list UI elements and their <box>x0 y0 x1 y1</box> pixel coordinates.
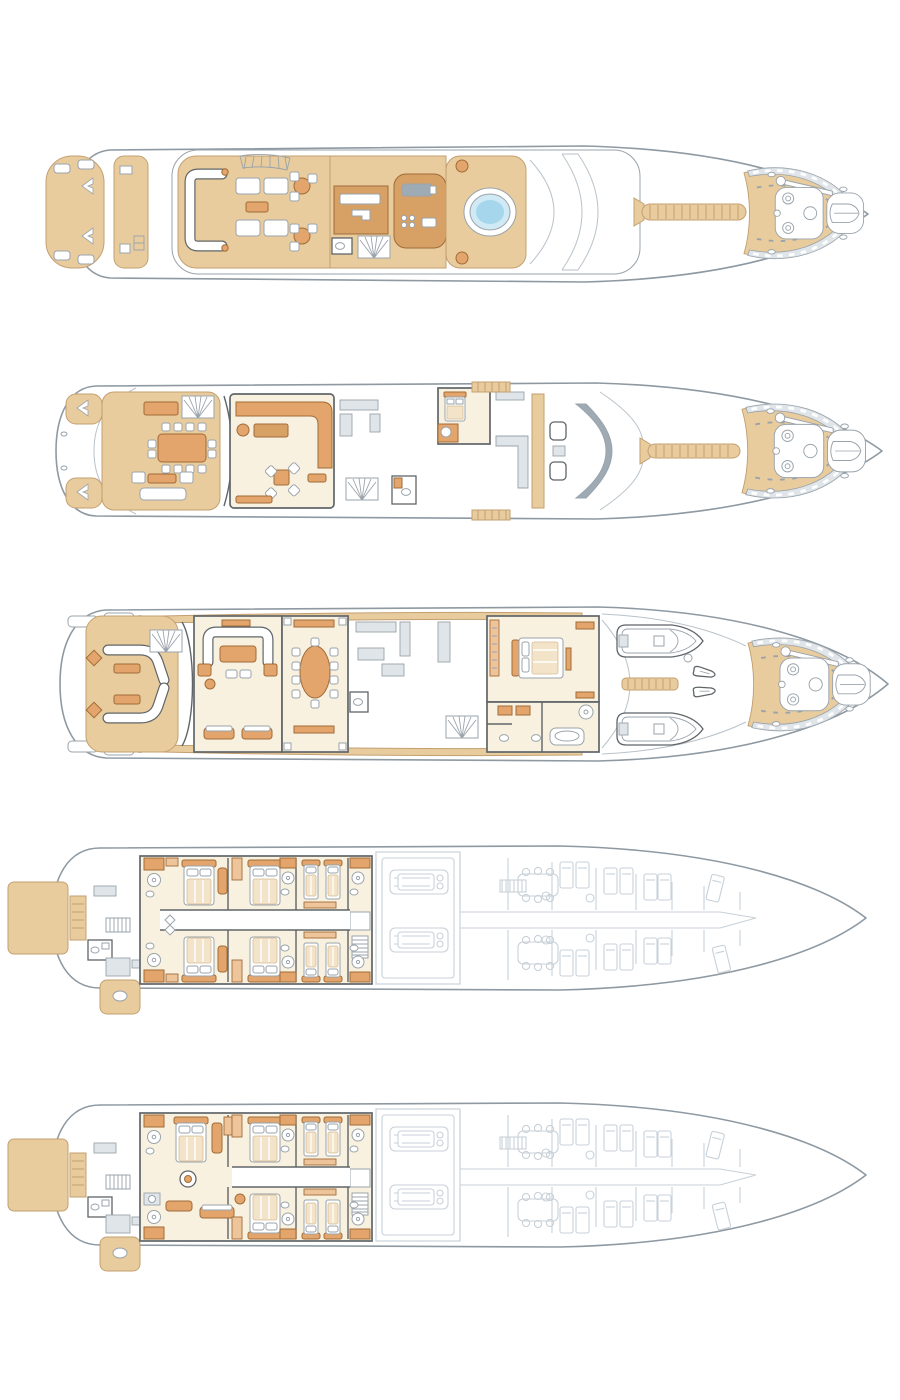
aft-wing-deck <box>114 156 148 268</box>
crane-base <box>684 654 692 662</box>
suite-sofa <box>212 1123 222 1153</box>
captain-cabin <box>438 388 490 444</box>
dining-table <box>300 646 330 698</box>
fan-stairs <box>182 396 214 418</box>
lobby-stairs <box>446 716 478 738</box>
gym-pod <box>394 174 446 248</box>
corridor <box>160 910 350 930</box>
tender-starboard <box>617 713 703 745</box>
owner-bathroom <box>487 702 599 752</box>
sideboard <box>294 620 334 627</box>
deck-plan-lower-deck-b <box>4 1081 886 1277</box>
aft-stair-pod <box>46 156 104 268</box>
coffee-table <box>220 646 256 662</box>
tender-port <box>617 625 703 657</box>
sideboard <box>294 726 334 733</box>
day-head <box>332 238 352 254</box>
deck-plan-sun-deck <box>44 126 880 298</box>
jacuzzi <box>464 188 516 236</box>
dining-room <box>282 616 348 752</box>
owner-bed-headboard <box>512 640 519 676</box>
helm-chair-port <box>550 422 566 440</box>
jacuzzi-platform <box>446 156 526 268</box>
sky-lounge <box>230 394 334 508</box>
foredeck-windlass <box>748 638 870 731</box>
fan-stairs <box>150 630 182 652</box>
foredeck-windlass <box>744 168 864 259</box>
owner-stateroom <box>487 616 599 702</box>
lounge-table <box>235 1194 245 1204</box>
foredeck-windlass <box>742 404 866 498</box>
fan-stairs <box>358 236 390 258</box>
deck-plan-main-deck <box>42 600 892 768</box>
corridor <box>232 1167 350 1187</box>
tv-cabinet <box>236 496 272 503</box>
yacht-deck-plans <box>0 0 900 1400</box>
deck-plan-lower-deck <box>4 824 886 1020</box>
helm-chair-starboard <box>550 462 566 480</box>
bar-cabinet <box>144 402 178 415</box>
bar <box>334 186 388 234</box>
deck-plan-bridge-deck <box>40 376 888 526</box>
chaise <box>166 1201 192 1211</box>
main-salon <box>194 616 282 752</box>
